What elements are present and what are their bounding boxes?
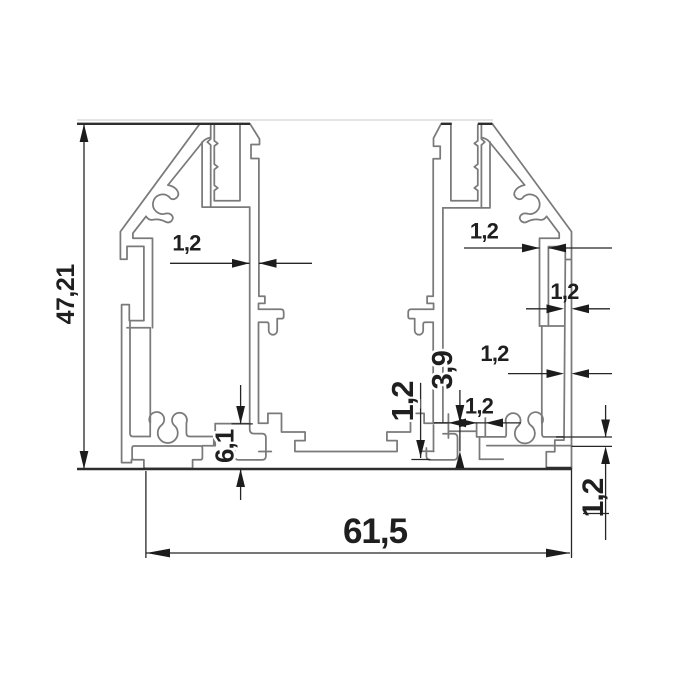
svg-text:61,5: 61,5: [343, 512, 408, 551]
svg-text:1,2: 1,2: [577, 478, 610, 517]
svg-text:1,2: 1,2: [480, 341, 509, 366]
svg-text:3,9: 3,9: [427, 350, 459, 389]
svg-text:1,2: 1,2: [385, 381, 420, 421]
svg-text:6,1: 6,1: [210, 429, 240, 463]
svg-text:1,2: 1,2: [172, 231, 201, 256]
svg-text:1,2: 1,2: [550, 279, 579, 304]
svg-text:1,2: 1,2: [470, 219, 499, 244]
svg-text:1,2: 1,2: [465, 394, 494, 419]
svg-text:47,21: 47,21: [52, 264, 80, 325]
